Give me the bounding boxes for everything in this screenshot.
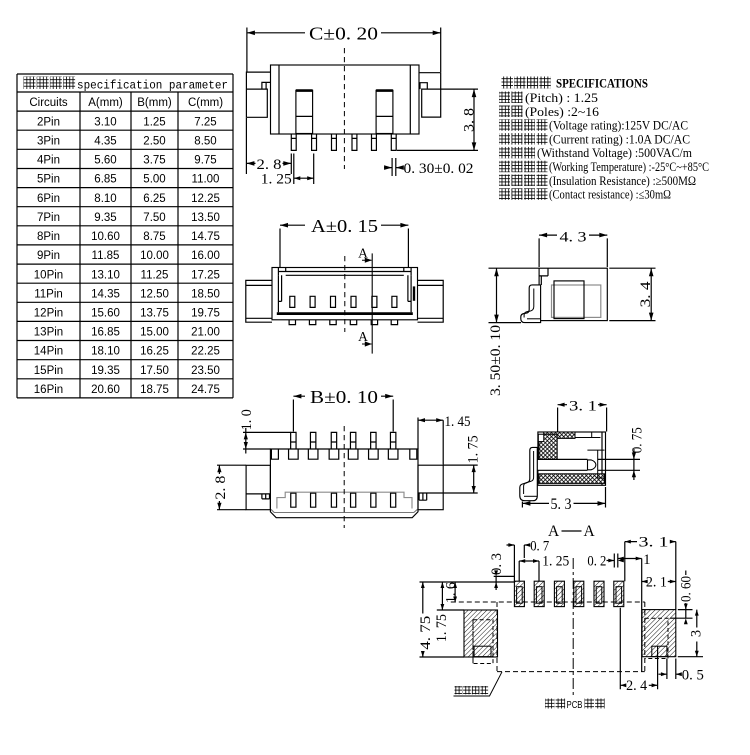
svg-text:16.25: 16.25 <box>140 346 169 358</box>
svg-text:B(mm): B(mm) <box>137 97 172 109</box>
svg-text:20.60: 20.60 <box>91 384 120 396</box>
svg-text:11.85: 11.85 <box>92 250 120 262</box>
svg-text:17.50: 17.50 <box>140 365 169 377</box>
svg-text:10Pin: 10Pin <box>34 269 63 281</box>
svg-text:1. 25: 1. 25 <box>261 171 292 187</box>
svg-text:16.00: 16.00 <box>191 250 220 262</box>
svg-text:21.00: 21.00 <box>191 327 220 339</box>
svg-text:specification parameter: specification parameter <box>77 79 228 93</box>
svg-text:4Pin: 4Pin <box>37 155 60 167</box>
svg-text:0. 60: 0. 60 <box>678 576 694 602</box>
svg-text:6Pin: 6Pin <box>37 193 60 205</box>
svg-text:5.00: 5.00 <box>143 174 165 186</box>
svg-text:13.75: 13.75 <box>140 308 169 320</box>
svg-text:3.75: 3.75 <box>143 155 165 167</box>
svg-text:11Pin: 11Pin <box>34 288 63 300</box>
svg-text:11.25: 11.25 <box>141 269 169 281</box>
svg-text:14Pin: 14Pin <box>34 346 63 358</box>
svg-text:4. 3: 4. 3 <box>560 230 587 246</box>
svg-text:7.50: 7.50 <box>143 212 165 224</box>
svg-text:(Current rating) :1.0A DC/AC: (Current rating) :1.0A DC/AC <box>549 132 690 146</box>
svg-text:(Insulation Resistance) :≥500M: (Insulation Resistance) :≥500MΩ <box>549 174 696 188</box>
svg-text:13.50: 13.50 <box>191 212 220 224</box>
svg-text:3. 8: 3. 8 <box>461 108 477 132</box>
svg-text:15.60: 15.60 <box>91 308 120 320</box>
svg-text:0. 7: 0. 7 <box>530 538 549 554</box>
svg-text:A: A <box>548 523 560 540</box>
svg-text:23.50: 23.50 <box>191 365 220 377</box>
svg-text:17.25: 17.25 <box>191 269 220 281</box>
svg-text:1. 75: 1. 75 <box>434 614 450 642</box>
svg-text:7Pin: 7Pin <box>37 212 60 224</box>
svg-text:9.75: 9.75 <box>194 155 216 167</box>
svg-text:18.10: 18.10 <box>91 346 120 358</box>
svg-text:8.50: 8.50 <box>194 135 216 147</box>
svg-text:3. 1: 3. 1 <box>569 399 597 415</box>
svg-text:2.50: 2.50 <box>143 135 165 147</box>
svg-text:14.75: 14.75 <box>191 231 220 243</box>
svg-text:C±0. 20: C±0. 20 <box>309 24 378 44</box>
svg-text:0. 3: 0. 3 <box>489 553 505 575</box>
svg-text:1. 25: 1. 25 <box>542 554 569 570</box>
svg-text:22.25: 22.25 <box>191 346 220 358</box>
svg-text:B±0. 10: B±0. 10 <box>310 387 378 407</box>
svg-text:18.75: 18.75 <box>140 384 169 396</box>
svg-text:0. 30±0. 02: 0. 30±0. 02 <box>404 161 474 177</box>
svg-text:3.10: 3.10 <box>94 116 116 128</box>
svg-text:19.75: 19.75 <box>191 308 220 320</box>
svg-text:Circuits: Circuits <box>29 97 68 109</box>
svg-text:9.35: 9.35 <box>94 212 116 224</box>
svg-text:1. 45: 1. 45 <box>445 414 471 430</box>
svg-text:13Pin: 13Pin <box>34 327 63 339</box>
svg-text:18.50: 18.50 <box>191 288 220 300</box>
svg-text:(Withstand Voltage) :500VAC/m: (Withstand Voltage) :500VAC/m <box>537 146 692 160</box>
svg-text:15.00: 15.00 <box>140 327 169 339</box>
svg-text:11.00: 11.00 <box>192 174 220 186</box>
svg-text:(Pitch) : 1.25: (Pitch) : 1.25 <box>525 91 598 105</box>
svg-text:12.25: 12.25 <box>191 193 220 205</box>
svg-text:1. 75: 1. 75 <box>465 435 481 463</box>
svg-text:8Pin: 8Pin <box>37 231 60 243</box>
svg-text:19.35: 19.35 <box>91 365 120 377</box>
svg-text:5.60: 5.60 <box>94 155 116 167</box>
svg-text:10.60: 10.60 <box>91 231 120 243</box>
svg-text:4. 75: 4. 75 <box>418 616 434 650</box>
svg-text:1. 6: 1. 6 <box>443 582 458 603</box>
svg-text:15Pin: 15Pin <box>34 365 63 377</box>
svg-text:10.00: 10.00 <box>140 250 169 262</box>
svg-text:3: 3 <box>689 630 705 637</box>
svg-text:(Contact resistance) :≤30mΩ: (Contact resistance) :≤30mΩ <box>549 188 671 202</box>
svg-text:A: A <box>584 523 596 540</box>
svg-text:12.50: 12.50 <box>140 288 169 300</box>
svg-text:13.10: 13.10 <box>91 269 120 281</box>
svg-text:2. 8: 2. 8 <box>213 476 229 500</box>
svg-text:3. 50±0. 10: 3. 50±0. 10 <box>488 325 504 396</box>
svg-text:A(mm): A(mm) <box>88 97 123 109</box>
svg-text:(Voltage rating):125V DC/AC: (Voltage rating):125V DC/AC <box>549 119 688 133</box>
svg-text:A±0. 15: A±0. 15 <box>311 216 378 236</box>
svg-text:5. 3: 5. 3 <box>551 496 572 513</box>
svg-text:A: A <box>358 329 368 344</box>
svg-text:2. 1: 2. 1 <box>646 574 667 590</box>
svg-text:7.25: 7.25 <box>194 116 216 128</box>
svg-text:24.75: 24.75 <box>191 384 220 396</box>
svg-text:0. 2: 0. 2 <box>587 554 606 570</box>
svg-text:9Pin: 9Pin <box>37 250 60 262</box>
svg-text:(Working Temperature) :-25°C~+: (Working Temperature) :-25°C~+85°C <box>549 160 709 174</box>
svg-text:0. 5: 0. 5 <box>682 667 704 683</box>
svg-text:2. 8: 2. 8 <box>257 157 282 173</box>
svg-text:2. 4: 2. 4 <box>626 678 648 694</box>
svg-text:C(mm): C(mm) <box>188 97 223 109</box>
svg-text:14.35: 14.35 <box>91 288 120 300</box>
svg-text:3Pin: 3Pin <box>37 135 60 147</box>
svg-text:16Pin: 16Pin <box>34 384 63 396</box>
svg-text:8.75: 8.75 <box>143 231 165 243</box>
svg-text:16.85: 16.85 <box>91 327 120 339</box>
svg-text:6.25: 6.25 <box>143 193 165 205</box>
svg-text:3. 1: 3. 1 <box>639 535 669 551</box>
svg-text:1: 1 <box>643 552 650 568</box>
svg-text:A: A <box>358 245 368 260</box>
svg-text:0. 75: 0. 75 <box>629 427 645 453</box>
svg-text:1.25: 1.25 <box>143 116 165 128</box>
svg-text:SPECIFICATIONS: SPECIFICATIONS <box>556 76 648 91</box>
svg-text:PCB: PCB <box>567 699 583 711</box>
svg-text:5Pin: 5Pin <box>37 174 60 186</box>
svg-text:12Pin: 12Pin <box>34 308 63 320</box>
svg-text:8.10: 8.10 <box>94 193 116 205</box>
svg-text:3. 4: 3. 4 <box>638 281 654 308</box>
svg-text:2Pin: 2Pin <box>37 116 60 128</box>
svg-text:(Poles) :2~16: (Poles) :2~16 <box>525 105 599 119</box>
svg-text:6.85: 6.85 <box>94 174 116 186</box>
svg-text:1. 0: 1. 0 <box>239 409 255 430</box>
svg-text:4.35: 4.35 <box>94 135 116 147</box>
